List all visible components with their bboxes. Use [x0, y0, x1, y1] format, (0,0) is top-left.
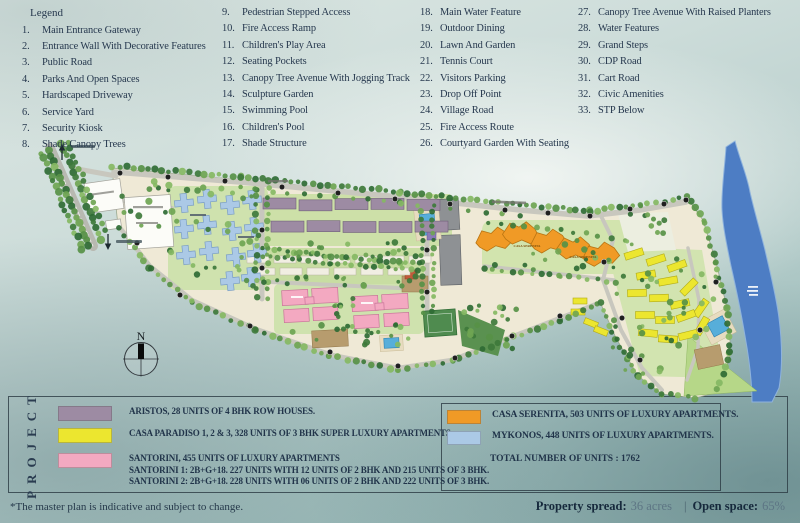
legend-item: 17. Shade Structure	[222, 136, 418, 152]
legend-item-number: 17.	[222, 136, 242, 152]
legend-item: 28. Water Features	[578, 21, 792, 37]
legend-item: 19. Outdoor Dining	[420, 21, 576, 37]
legend-item: 25. Fire Access Route	[420, 120, 576, 136]
legend-item-number: 28.	[578, 21, 598, 37]
project-panel-right-frame	[441, 403, 721, 491]
legend-item-number: 25.	[420, 120, 440, 136]
legend-item-label: Service Yard	[42, 105, 94, 121]
masterplan-page: Legend 1. Main Entrance Gateway 2. Entra…	[0, 0, 800, 523]
legend-markers	[117, 170, 719, 369]
legend-item-label: Public Road	[42, 55, 92, 71]
legend-item: 29. Grand Steps	[578, 38, 792, 54]
legend-item: 31. Cart Road	[578, 71, 792, 87]
legend-item-number: 15.	[222, 103, 242, 119]
legend-item: 30. CDP Road	[578, 54, 792, 70]
legend-column-1: Legend 1. Main Entrance Gateway 2. Entra…	[22, 5, 212, 154]
legend-item-number: 33.	[578, 103, 598, 119]
legend-item-number: 16.	[222, 120, 242, 136]
legend-item-label: Visitors Parking	[440, 71, 506, 87]
legend-item-number: 1.	[22, 23, 42, 39]
legend-item: 27. Canopy Tree Avenue With Raised Plant…	[578, 5, 792, 21]
legend-item-number: 13.	[222, 71, 242, 87]
casa-paradiso-cluster	[571, 248, 710, 343]
legend-item: 12. Seating Pockets	[222, 54, 418, 70]
legend-item: 11. Children's Play Area	[222, 38, 418, 54]
legend-item-number: 18.	[420, 5, 440, 21]
micro-label-marks	[92, 180, 526, 238]
aristos-row-houses	[263, 198, 448, 233]
legend-item-number: 3.	[22, 55, 42, 71]
legend-column-4: 27. Canopy Tree Avenue With Raised Plant…	[578, 5, 792, 120]
legend-item: 26. Courtyard Garden With Seating	[420, 136, 576, 152]
stats-separator: |	[684, 499, 687, 514]
legend-item-label: Fire Access Ramp	[242, 21, 316, 37]
legend-item-label: Swimming Pool	[242, 103, 308, 119]
santorini-label-marks	[291, 296, 373, 304]
legend-item-label: Hardscaped Driveway	[42, 88, 133, 104]
legend-item: 6. Service Yard	[22, 105, 212, 121]
legend-item-label: Outdoor Dining	[440, 21, 505, 37]
trees	[38, 140, 733, 403]
legend-item-number: 19.	[420, 21, 440, 37]
legend-item: 10. Fire Access Ramp	[222, 21, 418, 37]
legend-item: 1. Main Entrance Gateway	[22, 23, 212, 39]
legend-item-number: 23.	[420, 87, 440, 103]
legend-item-number: 10.	[222, 21, 242, 37]
legend-item-label: Parks And Open Spaces	[42, 72, 139, 88]
legend-item: 14. Sculpture Garden	[222, 87, 418, 103]
legend-item: 4. Parks And Open Spaces	[22, 72, 212, 88]
legend-item-number: 6.	[22, 105, 42, 121]
roads	[50, 148, 699, 390]
legend-item-label: Seating Pockets	[242, 54, 307, 70]
open-space-label: Open space:	[692, 499, 758, 514]
mykonos-cluster	[174, 189, 268, 292]
river	[722, 141, 782, 402]
compass-north-label: N	[137, 329, 146, 343]
legend-item-number: 20.	[420, 38, 440, 54]
legend-item: 15. Swimming Pool	[222, 103, 418, 119]
legend-item-label: Fire Access Route	[440, 120, 514, 136]
compass: N	[123, 329, 159, 377]
legend-item: 18. Main Water Feature	[420, 5, 576, 21]
legend-item-number: 4.	[22, 72, 42, 88]
lawn-triangle	[684, 336, 757, 396]
legend-item-label: Children's Play Area	[242, 38, 326, 54]
legend-item-label: Children's Pool	[242, 120, 304, 136]
legend-item-number: 21.	[420, 54, 440, 70]
property-spread-label: Property spread:	[536, 499, 627, 514]
legend-item-label: Sculpture Garden	[242, 87, 313, 103]
legend-item: 20. Lawn And Garden	[420, 38, 576, 54]
legend-column-2: 9. Pedestrian Stepped Access 10. Fire Ac…	[222, 5, 418, 153]
tennis-courts	[423, 309, 505, 356]
swimming-pools	[380, 208, 737, 352]
legend-item-label: Courtyard Garden With Seating	[440, 136, 569, 152]
legend-item: 21. Tennis Court	[420, 54, 576, 70]
open-space-value: 65%	[762, 499, 785, 514]
legend-item-label: Grand Steps	[598, 38, 648, 54]
legend-item-number: 32.	[578, 87, 598, 103]
clubhouse-towers	[437, 198, 462, 285]
legend-item-label: Canopy Tree Avenue With Raised Planters	[598, 5, 771, 21]
legend-title: Legend	[30, 5, 212, 22]
disclaimer: *The master plan is indicative and subje…	[10, 501, 243, 513]
legend-item: 13. Canopy Tree Avenue With Jogging Trac…	[222, 71, 418, 87]
legend-item-number: 5.	[22, 88, 42, 104]
legend-item: 5. Hardscaped Driveway	[22, 88, 212, 104]
legend-item-label: Tennis Court	[440, 54, 493, 70]
casa-serenita-label: CASA SERENITA	[514, 244, 542, 248]
legend-item-label: Main Entrance Gateway	[42, 23, 141, 39]
legend-item-number: 9.	[222, 5, 242, 21]
casa-serenita-label: CASA SERENITA	[570, 255, 598, 259]
legend-item-number: 31.	[578, 71, 598, 87]
river-label-marks	[747, 286, 758, 296]
santorini-cluster	[282, 287, 410, 328]
legend-item-label: Shade Canopy Trees	[42, 137, 126, 153]
legend-item: 9. Pedestrian Stepped Access	[222, 5, 418, 21]
legend-item-label: CDP Road	[598, 54, 642, 70]
legend-item-number: 2.	[22, 39, 42, 55]
property-stats: Property spread: 36 acres | Open space: …	[536, 499, 791, 514]
legend-item-label: STP Below	[598, 103, 644, 119]
legend-item-label: Canopy Tree Avenue With Jogging Track	[242, 71, 410, 87]
civic-buildings	[84, 179, 174, 250]
property-spread-value: 36 acres	[631, 499, 672, 514]
legend-item: 7. Security Kiosk	[22, 121, 212, 137]
legend-item-number: 12.	[222, 54, 242, 70]
legend-item-number: 24.	[420, 103, 440, 119]
legend-column-3: 18. Main Water Feature 19. Outdoor Dinin…	[420, 5, 576, 153]
legend-item-label: Drop Off Point	[440, 87, 501, 103]
legend-item: 3. Public Road	[22, 55, 212, 71]
legend-item-label: Civic Amenities	[598, 87, 664, 103]
play-structures	[405, 232, 436, 279]
legend-item-number: 14.	[222, 87, 242, 103]
arrow-down-icon	[105, 234, 142, 250]
casa-serenita-cluster	[475, 221, 621, 268]
low-rise-rows	[247, 256, 431, 275]
legend-item-number: 26.	[420, 136, 440, 152]
site-boundary	[112, 168, 731, 398]
legend-item: 23. Drop Off Point	[420, 87, 576, 103]
legend-item-number: 8.	[22, 137, 42, 153]
legend-item-label: Shade Structure	[242, 136, 307, 152]
legend-item: 33. STP Below	[578, 103, 792, 119]
legend-item-label: Lawn And Garden	[440, 38, 515, 54]
legend-item: 22. Visitors Parking	[420, 71, 576, 87]
legend-item-label: Water Features	[598, 21, 659, 37]
legend-item: 32. Civic Amenities	[578, 87, 792, 103]
legend-item-label: Pedestrian Stepped Access	[242, 5, 350, 21]
legend-item: 2. Entrance Wall With Decorative Feature…	[22, 39, 212, 55]
garden-patches	[168, 186, 757, 396]
map-labels: CASA SERENITA CASA SERENITA N	[59, 144, 758, 377]
legend-item-label: Cart Road	[598, 71, 640, 87]
legend-item-number: 27.	[578, 5, 598, 21]
legend-item-label: Security Kiosk	[42, 121, 103, 137]
legend-item: 24. Village Road	[420, 103, 576, 119]
legend-item-number: 11.	[222, 38, 242, 54]
legend-item: 8. Shade Canopy Trees	[22, 137, 212, 153]
legend-item-number: 7.	[22, 121, 42, 137]
legend-item-number: 22.	[420, 71, 440, 87]
legend-item-label: Main Water Feature	[440, 5, 521, 21]
legend-item-number: 29.	[578, 38, 598, 54]
legend-item-number: 30.	[578, 54, 598, 70]
plazas	[312, 276, 724, 369]
legend-item-label: Entrance Wall With Decorative Features	[42, 39, 206, 55]
legend-item-label: Village Road	[440, 103, 493, 119]
legend-item: 16. Children's Pool	[222, 120, 418, 136]
